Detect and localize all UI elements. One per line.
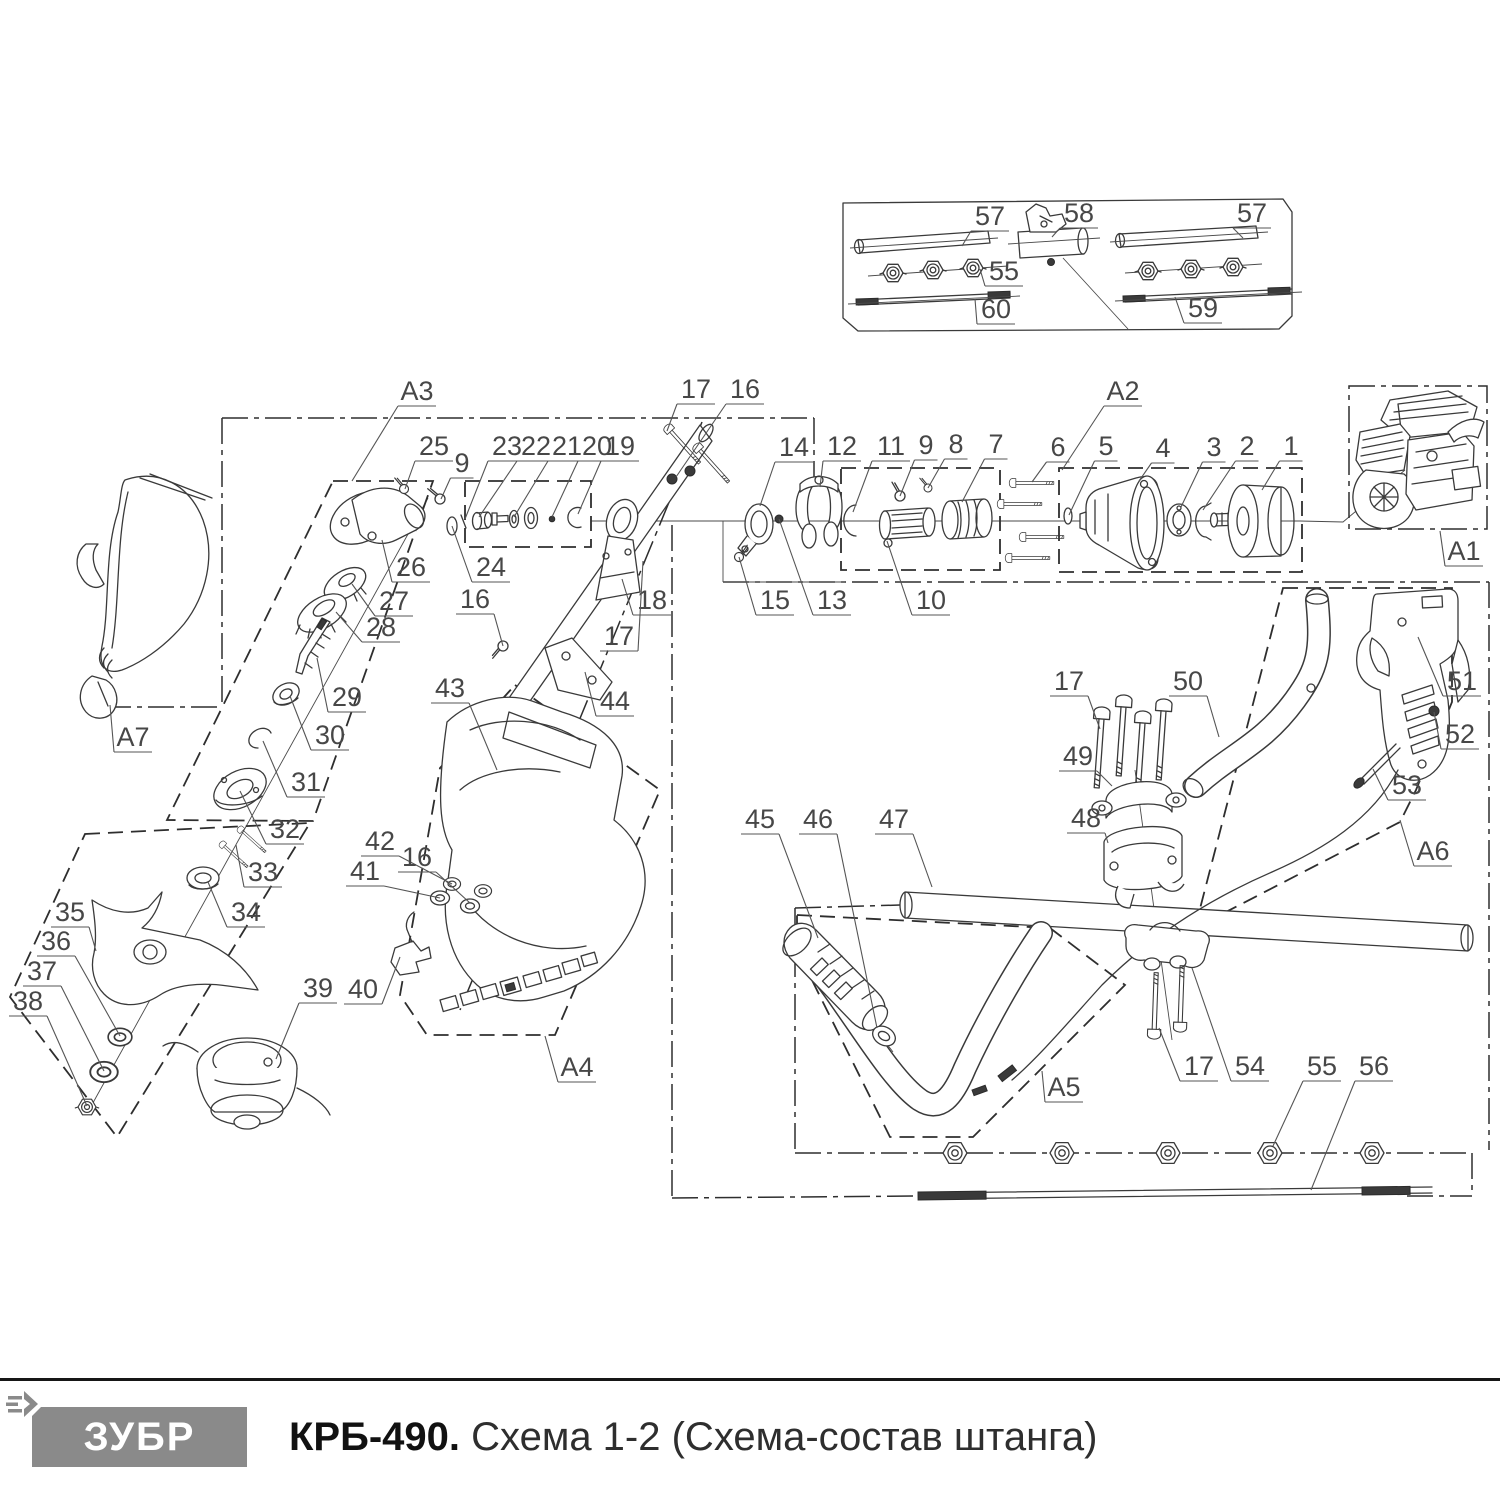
svg-text:37: 37 bbox=[27, 956, 57, 986]
nuts-55-left bbox=[868, 259, 1008, 281]
svg-text:55: 55 bbox=[1307, 1051, 1337, 1081]
gearbox-row-a2 bbox=[1080, 476, 1294, 570]
svg-text:17: 17 bbox=[604, 621, 634, 651]
screw-8 bbox=[917, 476, 934, 494]
part-label-A3: A3 bbox=[352, 376, 436, 481]
svg-text:A3: A3 bbox=[400, 376, 433, 406]
right-assembly bbox=[778, 589, 1473, 1105]
screw-9b bbox=[888, 480, 907, 503]
clamp-lower-48 bbox=[1104, 827, 1184, 908]
svg-text:29: 29 bbox=[332, 682, 362, 712]
bolt-6b bbox=[997, 500, 1042, 509]
part-label-33: 33 bbox=[236, 845, 282, 887]
svg-text:38: 38 bbox=[13, 986, 43, 1016]
svg-text:A5: A5 bbox=[1047, 1072, 1080, 1102]
part-label-55: 55 bbox=[980, 256, 1023, 286]
bearing-34 bbox=[187, 867, 219, 889]
svg-text:A4: A4 bbox=[560, 1052, 593, 1082]
part-label-A6: A6 bbox=[1400, 820, 1452, 866]
svg-text:13: 13 bbox=[817, 585, 847, 615]
svg-text:10: 10 bbox=[916, 585, 946, 615]
washer-16b bbox=[685, 466, 695, 476]
nut-55a bbox=[943, 1143, 967, 1164]
svg-text:25: 25 bbox=[419, 431, 449, 461]
svg-text:33: 33 bbox=[248, 857, 278, 887]
svg-text:39: 39 bbox=[303, 973, 333, 1003]
part-label-38: 38 bbox=[9, 986, 87, 1106]
part-label-17: 17 bbox=[1050, 666, 1100, 729]
bolt-17h bbox=[1173, 965, 1188, 1032]
svg-text:24: 24 bbox=[476, 552, 506, 582]
trimmer-head-39 bbox=[163, 1038, 330, 1129]
part-label-10: 10 bbox=[887, 541, 950, 615]
svg-text:6: 6 bbox=[1050, 432, 1065, 462]
clamp-ring-14 bbox=[738, 504, 773, 556]
bearing-set-row bbox=[461, 508, 581, 530]
svg-text:4: 4 bbox=[1155, 433, 1170, 463]
svg-text:42: 42 bbox=[365, 826, 395, 856]
svg-text:52: 52 bbox=[1445, 719, 1475, 749]
svg-text:40: 40 bbox=[348, 974, 378, 1004]
svg-text:16: 16 bbox=[402, 842, 432, 872]
svg-text:57: 57 bbox=[1237, 198, 1267, 228]
nut-38 bbox=[75, 1099, 98, 1115]
svg-text:35: 35 bbox=[55, 897, 85, 927]
svg-text:41: 41 bbox=[350, 856, 380, 886]
bolt-17d bbox=[1111, 694, 1133, 776]
part-label-49: 49 bbox=[1059, 741, 1112, 786]
svg-text:54: 54 bbox=[1235, 1051, 1265, 1081]
spline-coupler-10 bbox=[880, 508, 936, 547]
nut-55b bbox=[1050, 1143, 1074, 1164]
svg-text:8: 8 bbox=[948, 429, 963, 459]
part-label-A1: A1 bbox=[1440, 531, 1483, 566]
nut-55c bbox=[1156, 1143, 1180, 1164]
svg-text:7: 7 bbox=[988, 429, 1003, 459]
part-label-A5: A5 bbox=[1042, 1071, 1083, 1102]
part-label-26: 26 bbox=[382, 540, 430, 582]
svg-text:58: 58 bbox=[1064, 198, 1094, 228]
washer-16a bbox=[667, 474, 677, 484]
svg-text:17: 17 bbox=[1184, 1051, 1214, 1081]
svg-text:36: 36 bbox=[41, 926, 71, 956]
part-label-4: 4 bbox=[1139, 433, 1175, 481]
part-label-1: 1 bbox=[1262, 431, 1303, 490]
part-label-6: 6 bbox=[1032, 432, 1070, 482]
svg-text:9: 9 bbox=[454, 448, 469, 478]
svg-text:1: 1 bbox=[1283, 431, 1298, 461]
part-label-8: 8 bbox=[928, 429, 968, 488]
svg-text:11: 11 bbox=[877, 431, 905, 461]
clamp-upper-49 bbox=[1092, 782, 1186, 818]
svg-text:A1: A1 bbox=[1447, 536, 1480, 566]
svg-text:32: 32 bbox=[270, 814, 300, 844]
part-label-A4: A4 bbox=[545, 1036, 596, 1082]
snap-ring-31 bbox=[249, 728, 271, 748]
screw-33b bbox=[218, 840, 250, 870]
rubber-coupling-7 bbox=[942, 499, 992, 539]
bearing-30 bbox=[269, 678, 303, 709]
schematic-page: 575857556059A325923222120191716141211987… bbox=[0, 0, 1500, 1500]
svg-text:2: 2 bbox=[1239, 431, 1254, 461]
part-label-47: 47 bbox=[875, 804, 932, 887]
part-label-16: 16 bbox=[456, 584, 503, 646]
svg-text:51: 51 bbox=[1447, 666, 1477, 696]
screw-33a bbox=[236, 825, 268, 855]
shoulder-strap-a7 bbox=[77, 474, 212, 718]
svg-text:55: 55 bbox=[989, 256, 1019, 286]
svg-text:31: 31 bbox=[291, 767, 321, 797]
bearing-3 bbox=[1167, 504, 1191, 536]
brand-logo: ЗУБР bbox=[32, 1407, 247, 1467]
washer-16e bbox=[474, 885, 491, 898]
part-label-40: 40 bbox=[344, 957, 400, 1004]
part-label-7: 7 bbox=[962, 429, 1008, 502]
drive-rod-56 bbox=[918, 1186, 1432, 1200]
part-label-23: 23 bbox=[465, 431, 526, 519]
model-number: КРБ-490. bbox=[289, 1415, 460, 1459]
diagram-canvas: 575857556059A325923222120191716141211987… bbox=[0, 0, 1500, 1500]
nut-55e bbox=[1360, 1143, 1384, 1164]
svg-text:49: 49 bbox=[1063, 741, 1093, 771]
svg-text:A6: A6 bbox=[1416, 836, 1449, 866]
schema-title: КРБ-490. Схема 1-2 (Схема-состав штанга) bbox=[289, 1415, 1097, 1460]
svg-text:47: 47 bbox=[879, 804, 909, 834]
svg-text:56: 56 bbox=[1359, 1051, 1389, 1081]
svg-text:50: 50 bbox=[1173, 666, 1203, 696]
svg-text:60: 60 bbox=[981, 294, 1011, 324]
svg-text:22: 22 bbox=[521, 431, 551, 461]
svg-text:44: 44 bbox=[600, 686, 630, 716]
bolt-16c bbox=[489, 639, 510, 662]
svg-text:26: 26 bbox=[396, 552, 426, 582]
svg-text:A2: A2 bbox=[1106, 376, 1139, 406]
part-label-50: 50 bbox=[1169, 666, 1219, 737]
bolt-6d bbox=[1005, 554, 1050, 563]
svg-text:5: 5 bbox=[1098, 431, 1113, 461]
svg-text:48: 48 bbox=[1071, 803, 1101, 833]
bolt-17g bbox=[1147, 972, 1162, 1039]
washer-37 bbox=[90, 1062, 118, 1082]
svg-text:43: 43 bbox=[435, 673, 465, 703]
svg-text:3: 3 bbox=[1206, 432, 1221, 462]
nuts-right bbox=[1125, 258, 1262, 279]
svg-text:19: 19 bbox=[605, 431, 635, 461]
svg-text:17: 17 bbox=[681, 374, 711, 404]
brand-name: ЗУБР bbox=[84, 1417, 196, 1457]
nut-55d bbox=[1258, 1143, 1282, 1164]
part-label-28: 28 bbox=[336, 612, 400, 642]
part-label-A7: A7 bbox=[110, 705, 152, 752]
svg-text:A7: A7 bbox=[116, 722, 149, 752]
svg-text:15: 15 bbox=[760, 585, 790, 615]
clamp-halves-12 bbox=[796, 476, 842, 548]
bolt-17e bbox=[1130, 710, 1152, 792]
svg-text:45: 45 bbox=[745, 804, 775, 834]
part-label-3: 3 bbox=[1181, 432, 1226, 507]
svg-text:16: 16 bbox=[460, 584, 490, 614]
svg-text:53: 53 bbox=[1392, 770, 1422, 800]
engine-a1 bbox=[1353, 391, 1484, 529]
bolt-6c bbox=[1019, 533, 1064, 542]
part-label-17: 17 bbox=[1159, 1028, 1218, 1081]
washer-36 bbox=[108, 1028, 132, 1046]
svg-text:28: 28 bbox=[366, 612, 396, 642]
svg-text:46: 46 bbox=[803, 804, 833, 834]
tube-57-left bbox=[850, 231, 998, 254]
svg-text:30: 30 bbox=[315, 720, 345, 750]
bolt-17f bbox=[1151, 698, 1173, 780]
brand-arrow-icon bbox=[0, 1381, 46, 1427]
svg-text:23: 23 bbox=[492, 431, 522, 461]
part-label-17: 17 bbox=[667, 374, 715, 431]
part-label-34: 34 bbox=[208, 882, 265, 927]
svg-text:17: 17 bbox=[1054, 666, 1084, 696]
svg-text:34: 34 bbox=[231, 897, 261, 927]
svg-text:59: 59 bbox=[1188, 293, 1218, 323]
part-label-39: 39 bbox=[276, 973, 337, 1059]
svg-text:16: 16 bbox=[730, 374, 760, 404]
tube-57-right bbox=[1110, 226, 1268, 248]
part-label-60: 60 bbox=[975, 294, 1015, 324]
bolt-6a bbox=[1009, 479, 1054, 488]
svg-text:12: 12 bbox=[827, 431, 857, 461]
part-label-24: 24 bbox=[452, 526, 510, 582]
bevel-housing-4 bbox=[1080, 476, 1164, 570]
svg-text:57: 57 bbox=[975, 201, 1005, 231]
part-label-15: 15 bbox=[739, 557, 794, 615]
footer: ЗУБР КРБ-490. Схема 1-2 (Схема-состав шт… bbox=[0, 1378, 1500, 1500]
washer-16d bbox=[461, 899, 480, 913]
guard-43 bbox=[441, 697, 646, 1000]
bottom-hardware bbox=[918, 1143, 1432, 1200]
svg-text:9: 9 bbox=[918, 430, 933, 460]
svg-text:21: 21 bbox=[552, 431, 582, 461]
flange-cup-32 bbox=[207, 760, 273, 818]
svg-text:14: 14 bbox=[779, 432, 809, 462]
blade-set bbox=[75, 892, 330, 1129]
schema-subtitle: Схема 1-2 (Схема-состав штанга) bbox=[471, 1415, 1097, 1459]
part-label-55: 55 bbox=[1273, 1051, 1341, 1146]
